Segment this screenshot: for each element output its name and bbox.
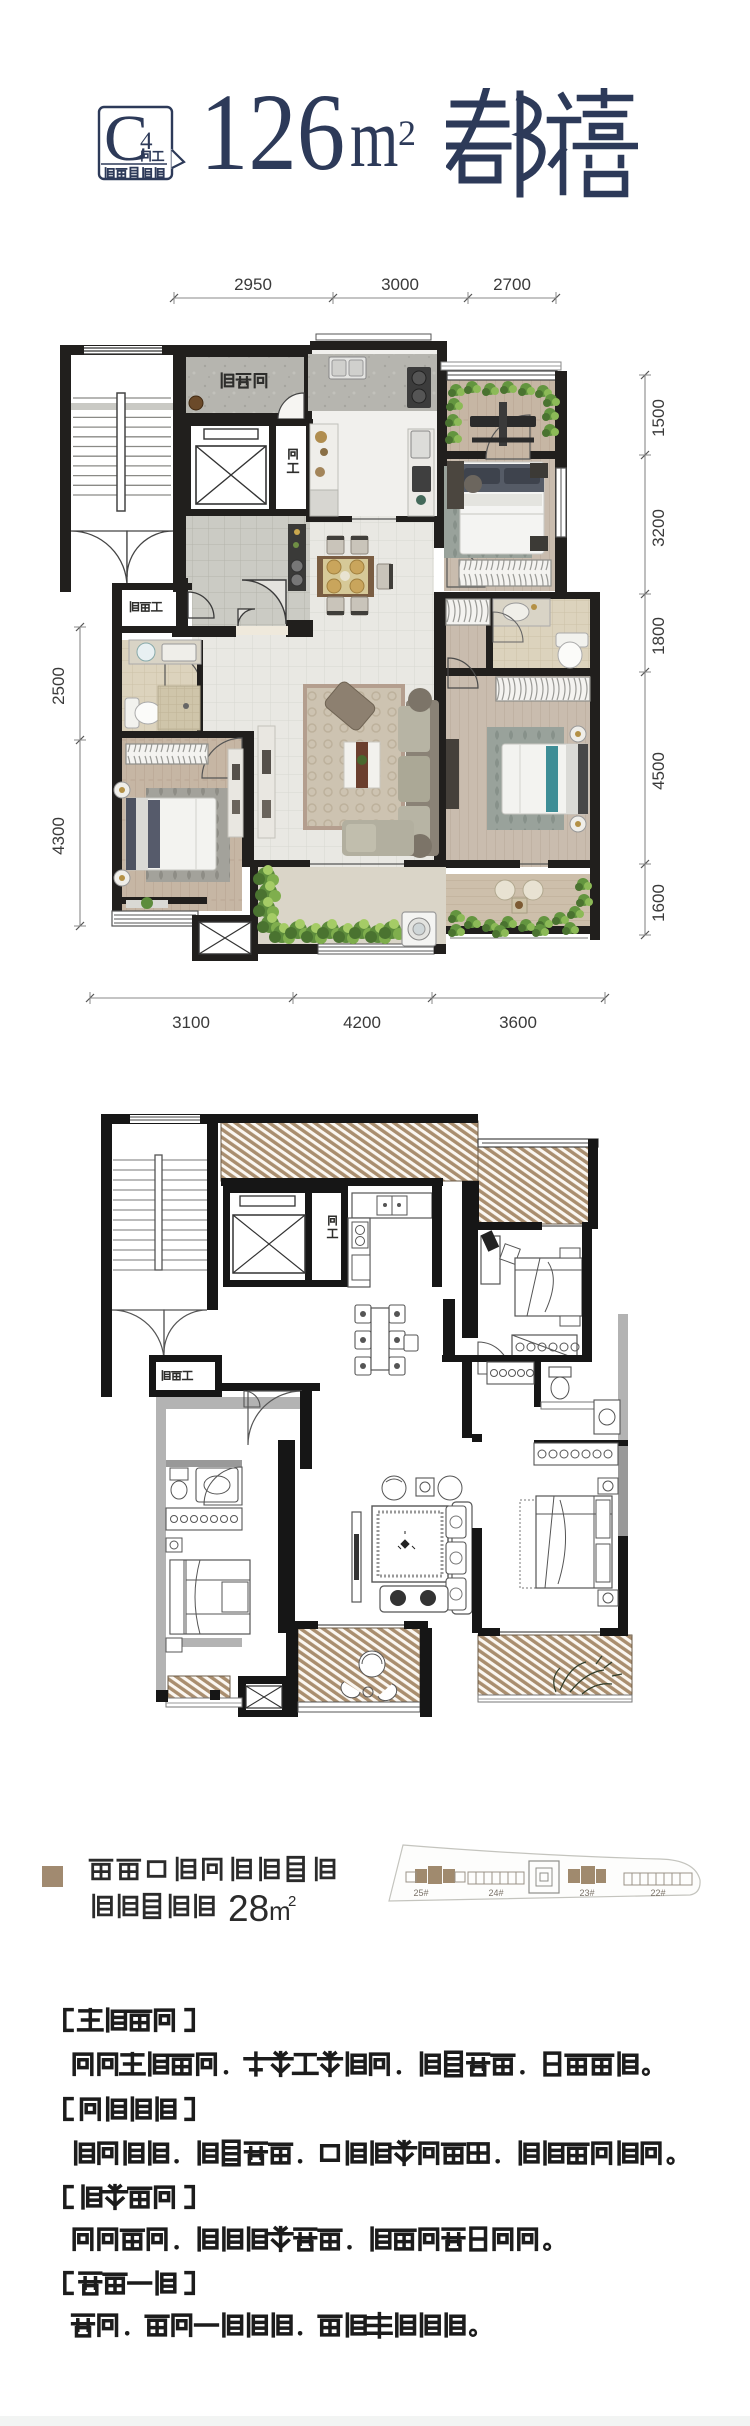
svg-text:24#: 24# [488, 1888, 503, 1898]
svg-text:3000: 3000 [381, 275, 419, 294]
svg-text:22#: 22# [650, 1888, 665, 1898]
svg-text:2500: 2500 [49, 667, 68, 705]
svg-text:2700: 2700 [493, 275, 531, 294]
svg-text:2950: 2950 [234, 275, 272, 294]
svg-text:25#: 25# [413, 1888, 428, 1898]
svg-text:1500: 1500 [649, 399, 668, 437]
svg-text:4200: 4200 [343, 1013, 381, 1032]
svg-text:3200: 3200 [649, 509, 668, 547]
svg-text:1600: 1600 [649, 884, 668, 922]
svg-text:4300: 4300 [49, 817, 68, 855]
svg-text:1800: 1800 [649, 617, 668, 655]
svg-text:3100: 3100 [172, 1013, 210, 1032]
svg-text:2: 2 [288, 1893, 296, 1910]
svg-text:4500: 4500 [649, 752, 668, 790]
svg-text:23#: 23# [579, 1888, 594, 1898]
svg-text:28: 28 [228, 1888, 269, 1929]
svg-text:3600: 3600 [499, 1013, 537, 1032]
